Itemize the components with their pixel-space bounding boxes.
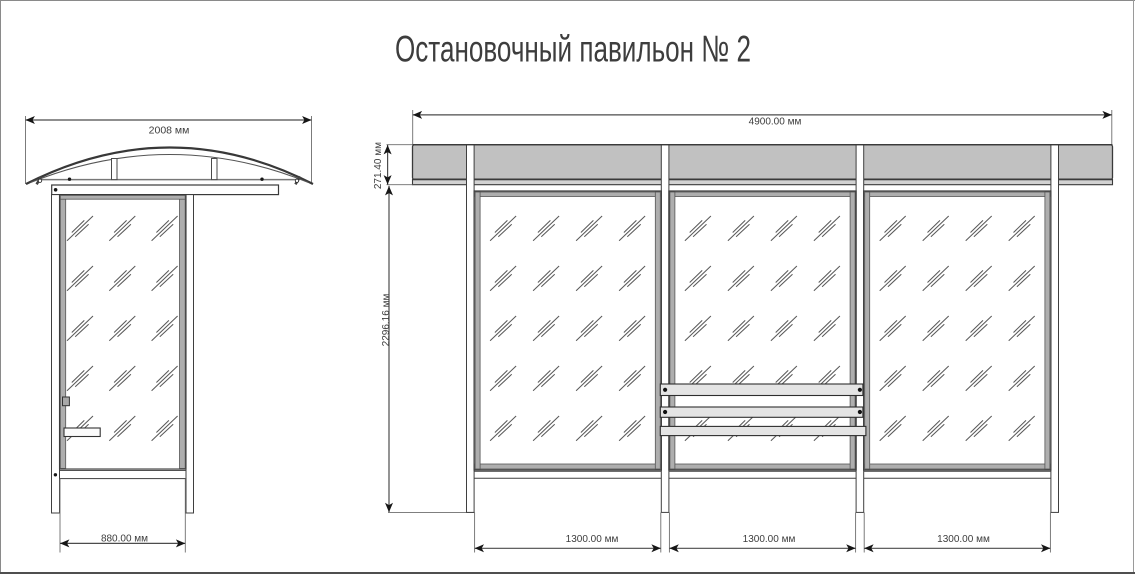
svg-text:1300.00 мм: 1300.00 мм <box>937 534 990 545</box>
svg-text:2008 мм: 2008 мм <box>149 125 190 137</box>
svg-text:1300.00 мм: 1300.00 мм <box>743 534 796 545</box>
svg-text:880.00 мм: 880.00 мм <box>101 533 148 544</box>
svg-text:2296.16 мм: 2296.16 мм <box>381 294 392 347</box>
svg-text:Остановочный павильон № 2: Остановочный павильон № 2 <box>395 28 751 70</box>
svg-text:1300.00 мм: 1300.00 мм <box>566 534 619 545</box>
svg-text:4900.00 мм: 4900.00 мм <box>749 117 802 128</box>
svg-text:271.40 мм: 271.40 мм <box>373 142 384 189</box>
